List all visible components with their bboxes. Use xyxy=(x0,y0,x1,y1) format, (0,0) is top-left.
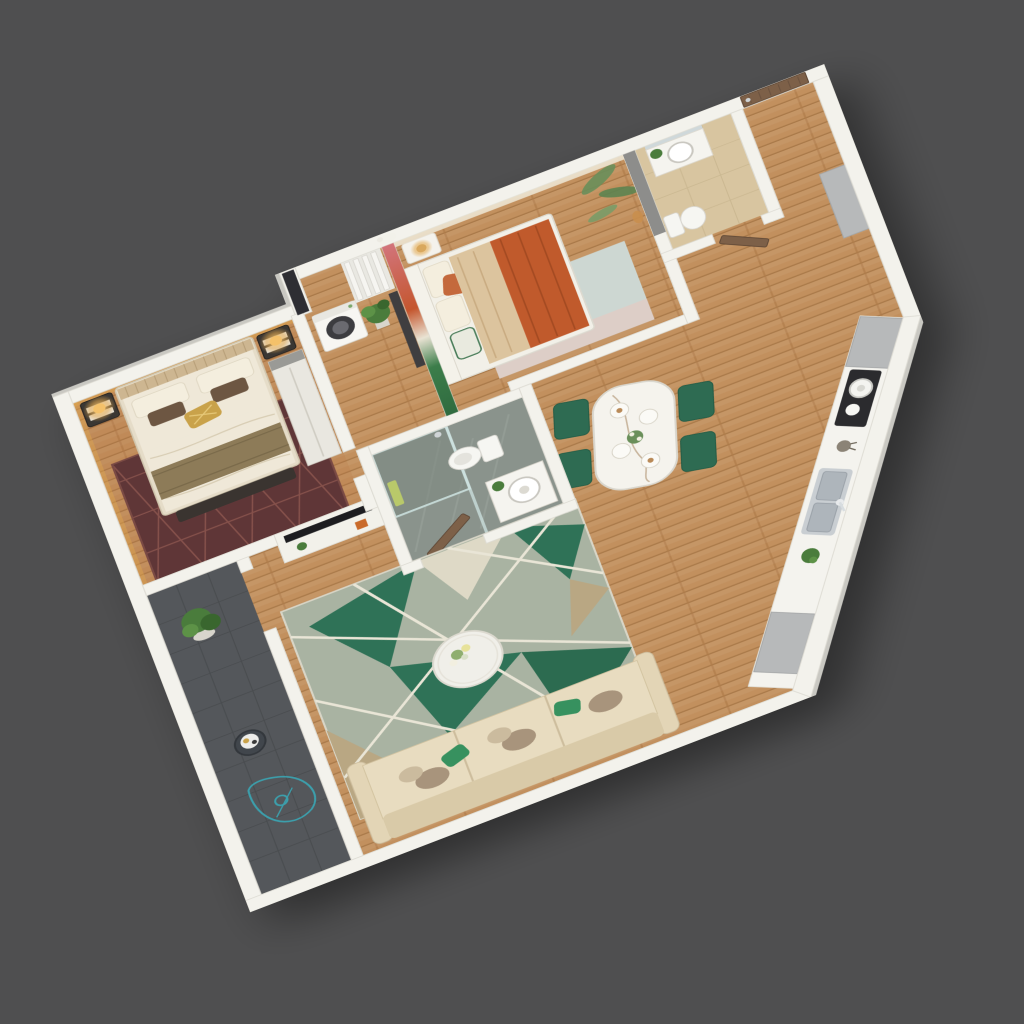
dining-chair xyxy=(680,431,716,473)
dining-chair xyxy=(553,398,589,440)
dining-chair xyxy=(678,380,714,422)
floor-plan-render xyxy=(0,0,1024,1024)
